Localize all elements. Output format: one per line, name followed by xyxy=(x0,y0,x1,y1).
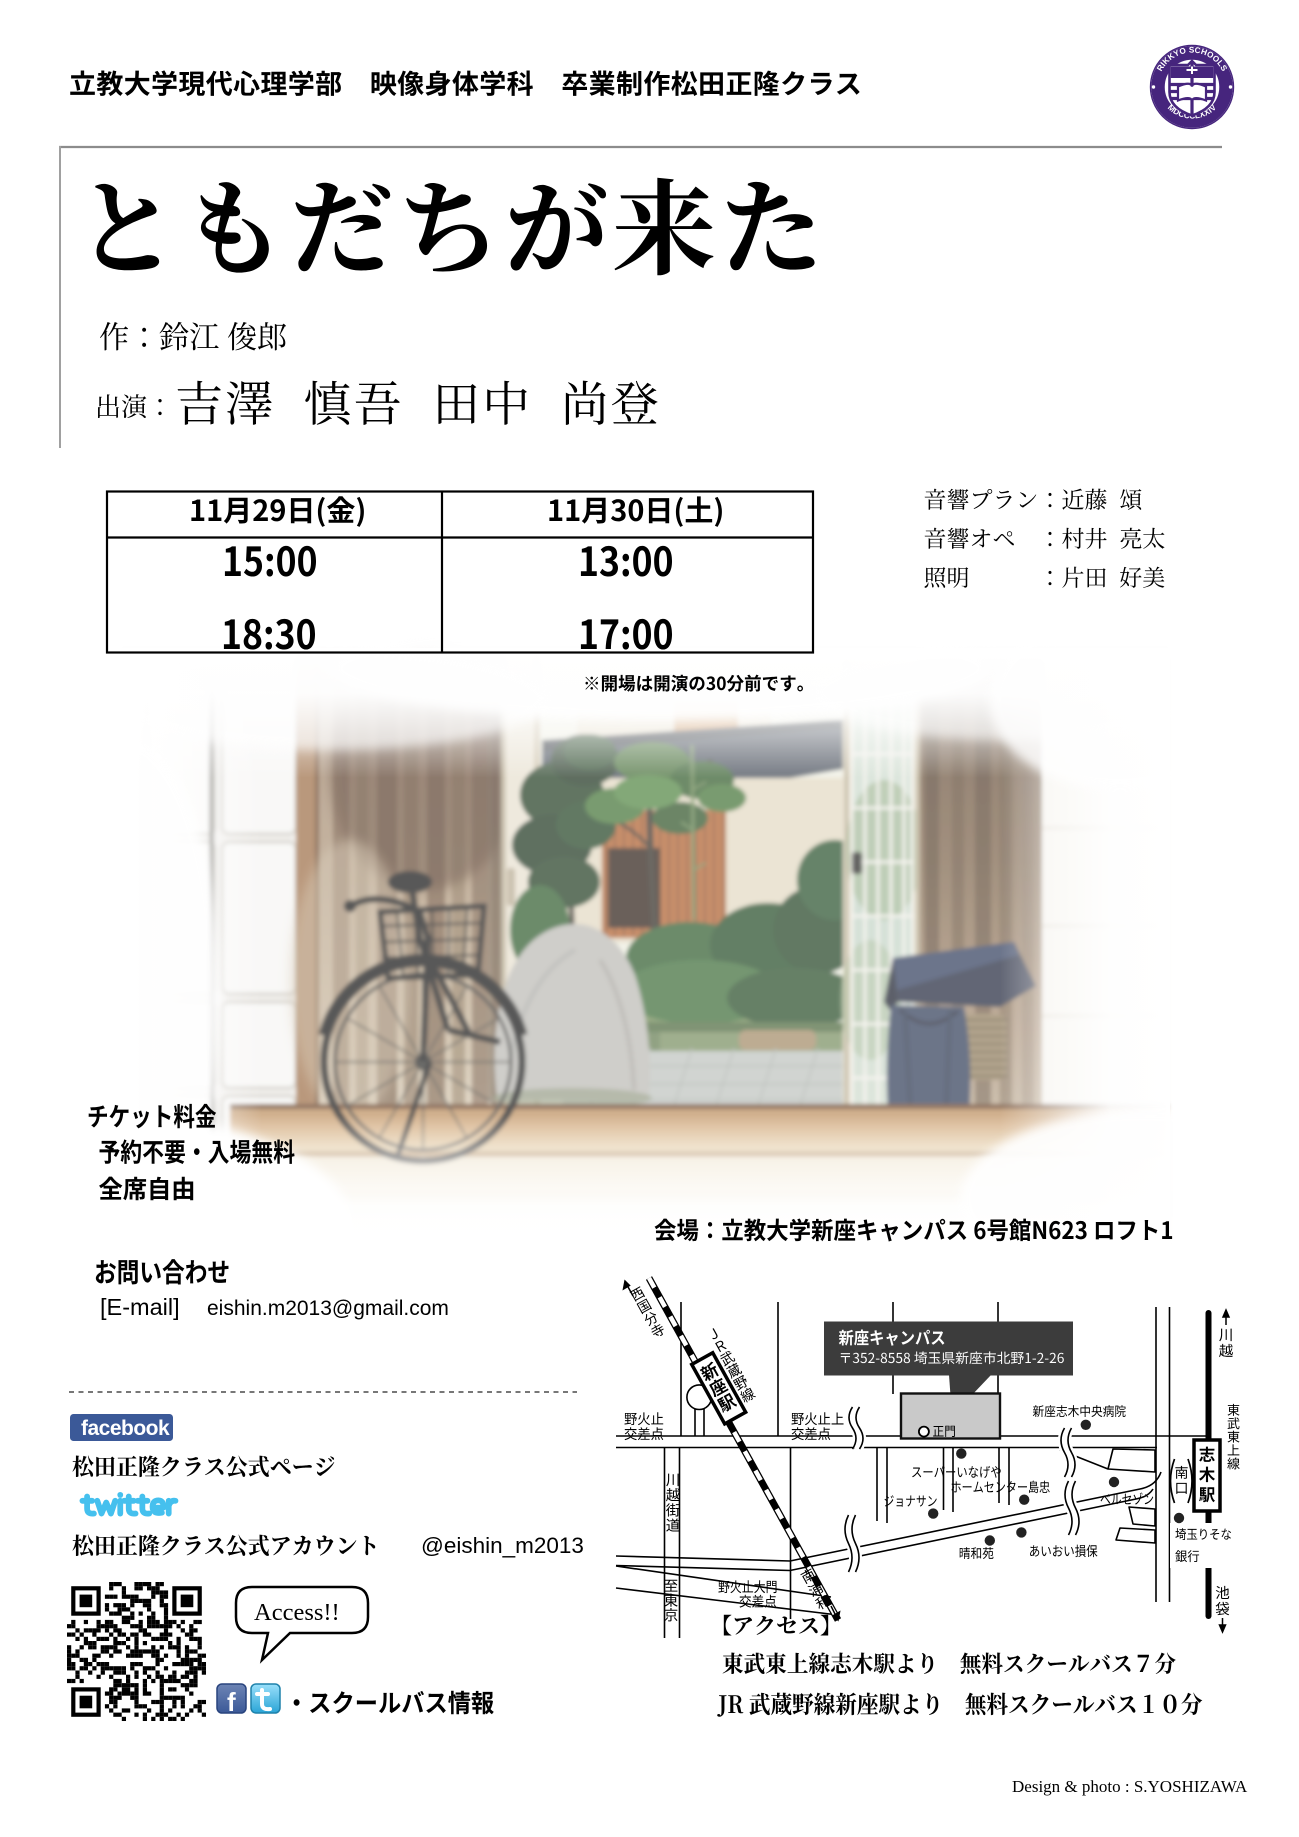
svg-text:f: f xyxy=(227,1687,236,1717)
svg-text:eishin.m2013@gmail.com: eishin.m2013@gmail.com xyxy=(207,1297,449,1320)
svg-text:@eishin_m2013: @eishin_m2013 xyxy=(421,1533,584,1558)
svg-text:Access!!: Access!! xyxy=(254,1599,340,1626)
svg-text:facebook: facebook xyxy=(81,1417,170,1440)
svg-text:[E-mail]: [E-mail] xyxy=(100,1294,180,1320)
svg-text:Design & photo : S.YOSHIZAWA: Design & photo : S.YOSHIZAWA xyxy=(1012,1777,1248,1796)
